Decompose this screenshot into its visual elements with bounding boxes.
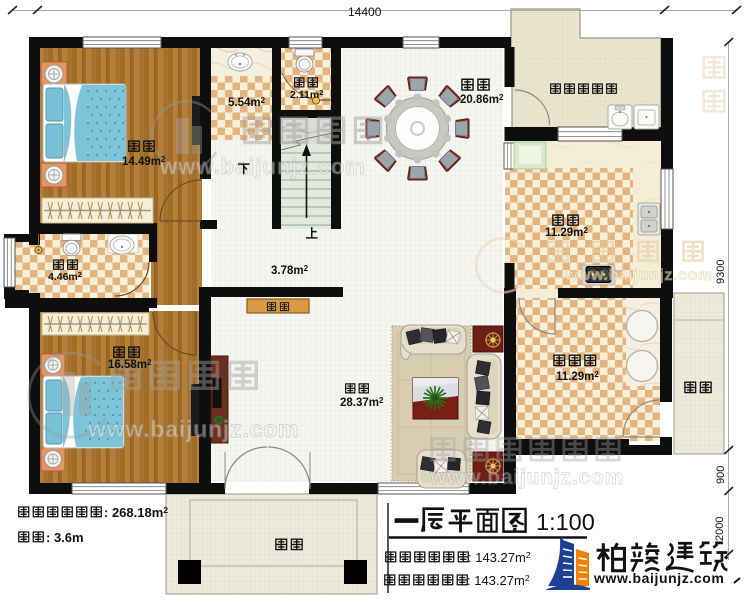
svg-text:: 3.6m: : 3.6m bbox=[46, 530, 84, 545]
svg-text:2000: 2000 bbox=[714, 517, 726, 541]
svg-text:11.29m2: 11.29m2 bbox=[545, 226, 588, 239]
svg-text:16.58m2: 16.58m2 bbox=[108, 358, 152, 371]
svg-text:www.baijunjz.com: www.baijunjz.com bbox=[564, 267, 713, 284]
svg-text:: 143.27m2: : 143.27m2 bbox=[468, 550, 531, 565]
svg-text:1:100: 1:100 bbox=[536, 509, 595, 535]
svg-text:www.baijunjz.com: www.baijunjz.com bbox=[87, 416, 299, 442]
svg-text:11.29m2: 11.29m2 bbox=[556, 370, 599, 383]
svg-text:2.11m2: 2.11m2 bbox=[290, 88, 323, 101]
svg-text:900: 900 bbox=[715, 466, 727, 484]
svg-text:www.baijunjz.com: www.baijunjz.com bbox=[159, 154, 366, 179]
svg-text:14.49m2: 14.49m2 bbox=[122, 155, 166, 168]
svg-text:20.86m2: 20.86m2 bbox=[460, 93, 504, 106]
svg-text:28.37m2: 28.37m2 bbox=[340, 396, 384, 409]
svg-text:14400: 14400 bbox=[348, 5, 382, 19]
svg-text:3.78m2: 3.78m2 bbox=[271, 264, 309, 277]
svg-text:9300: 9300 bbox=[715, 260, 727, 284]
svg-text:www.baijunjz.com: www.baijunjz.com bbox=[429, 466, 624, 489]
svg-text:: 143.27m2: : 143.27m2 bbox=[467, 573, 530, 588]
svg-text:5.54m2: 5.54m2 bbox=[228, 96, 266, 109]
svg-text:www.baijunjz.com: www.baijunjz.com bbox=[593, 570, 724, 586]
svg-text:4.46m2: 4.46m2 bbox=[48, 270, 82, 283]
svg-text:: 268.18m2: : 268.18m2 bbox=[104, 505, 168, 520]
